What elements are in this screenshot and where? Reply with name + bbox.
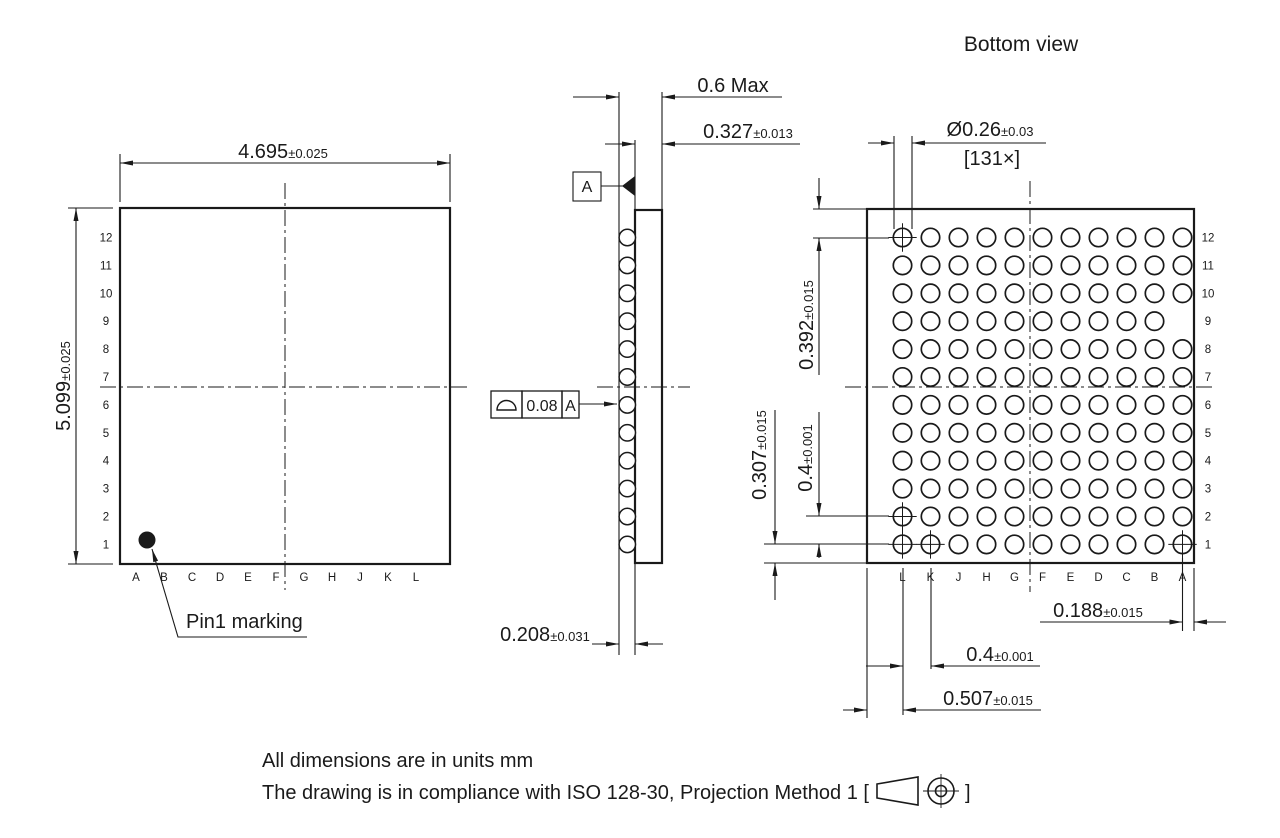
ball-J9 xyxy=(949,312,967,330)
dim-edge-right: 0.188±0.015 xyxy=(1053,600,1143,622)
ball-L3 xyxy=(893,479,911,497)
ball-B1 xyxy=(1145,535,1163,553)
ball-C12 xyxy=(1117,228,1135,246)
row-label: 11 xyxy=(1202,260,1214,272)
col-label: D xyxy=(216,572,224,584)
side-view-balls xyxy=(619,229,635,552)
ball-H11 xyxy=(977,256,995,274)
ball-E11 xyxy=(1061,256,1079,274)
ball-F12 xyxy=(1033,228,1051,246)
ball-C11 xyxy=(1117,256,1135,274)
col-label: H xyxy=(328,572,336,584)
ball-B12 xyxy=(1145,228,1163,246)
ball-H9 xyxy=(977,312,995,330)
side-ball-12 xyxy=(619,229,635,245)
ball-D3 xyxy=(1089,479,1107,497)
row-label: 7 xyxy=(1205,372,1211,384)
ball-L7 xyxy=(893,368,911,386)
ball-A4 xyxy=(1173,452,1191,470)
ball-D9 xyxy=(1089,312,1107,330)
ball-C9 xyxy=(1117,312,1135,330)
bottom-view-row-labels: 121110987654321 xyxy=(1202,233,1215,552)
ball-D10 xyxy=(1089,284,1107,302)
row-label: 7 xyxy=(103,372,109,384)
ball-A7 xyxy=(1173,368,1191,386)
ball-C2 xyxy=(1117,507,1135,525)
col-label: H xyxy=(982,572,990,584)
side-ball-1 xyxy=(619,536,635,552)
bottom-view: Ø0.26±0.03 [131×] 0.392±0.015 0.4±0.001 … xyxy=(749,119,1226,718)
ball-B5 xyxy=(1145,424,1163,442)
ball-J5 xyxy=(949,424,967,442)
ball-D6 xyxy=(1089,396,1107,414)
row-label: 6 xyxy=(1205,400,1211,412)
row-label: 9 xyxy=(103,316,109,328)
drawing-notes: All dimensions are in units mm The drawi… xyxy=(262,748,971,808)
col-label: F xyxy=(272,572,279,584)
ball-C7 xyxy=(1117,368,1135,386)
ball-count-label: [131×] xyxy=(964,148,1020,170)
ball-E6 xyxy=(1061,396,1079,414)
ball-K3 xyxy=(921,479,939,497)
row-label: 11 xyxy=(100,260,112,272)
col-label: A xyxy=(132,572,140,584)
ball-K11 xyxy=(921,256,939,274)
col-label: K xyxy=(384,572,392,584)
dim-edge-top: 0.392±0.015 xyxy=(796,280,818,370)
ball-E12 xyxy=(1061,228,1079,246)
row-label: 10 xyxy=(1202,288,1215,300)
col-label: E xyxy=(1067,572,1075,584)
ball-L10 xyxy=(893,284,911,302)
col-label: B xyxy=(160,572,168,584)
dim-ball-height: 0.208±0.031 xyxy=(500,624,590,646)
row-label: 10 xyxy=(100,288,113,300)
ball-B3 xyxy=(1145,479,1163,497)
pin1-label: Pin1 marking xyxy=(186,611,303,633)
ball-B8 xyxy=(1145,340,1163,358)
row-label: 5 xyxy=(1205,428,1211,440)
ball-F2 xyxy=(1033,507,1051,525)
ball-E1 xyxy=(1061,535,1079,553)
ball-D8 xyxy=(1089,340,1107,358)
ball-C5 xyxy=(1117,424,1135,442)
ball-B6 xyxy=(1145,396,1163,414)
ball-G3 xyxy=(1005,479,1023,497)
col-label: G xyxy=(300,572,309,584)
ball-H6 xyxy=(977,396,995,414)
side-ball-3 xyxy=(619,480,635,496)
ball-H12 xyxy=(977,228,995,246)
col-label: G xyxy=(1010,572,1019,584)
row-label: 1 xyxy=(1205,539,1211,551)
fcf-symbol-cell xyxy=(491,391,522,418)
row-label: 2 xyxy=(1205,512,1211,524)
ball-D2 xyxy=(1089,507,1107,525)
ball-G8 xyxy=(1005,340,1023,358)
ball-F6 xyxy=(1033,396,1051,414)
ball-C1 xyxy=(1117,535,1135,553)
ball-D7 xyxy=(1089,368,1107,386)
dim-edge-left: 0.507±0.015 xyxy=(943,688,1033,710)
ball-E7 xyxy=(1061,368,1079,386)
side-ball-9 xyxy=(619,313,635,329)
ball-K4 xyxy=(921,452,939,470)
ball-H7 xyxy=(977,368,995,386)
ball-D4 xyxy=(1089,452,1107,470)
profile-of-surface-icon xyxy=(497,401,516,411)
side-ball-6 xyxy=(619,397,635,413)
ball-B11 xyxy=(1145,256,1163,274)
fcf-datum-ref: A xyxy=(565,398,576,415)
ball-K12 xyxy=(921,228,939,246)
fcf-tolerance-value: 0.08 xyxy=(526,398,557,415)
dim-ball-diameter: Ø0.26±0.03 xyxy=(947,119,1034,141)
ball-L9 xyxy=(893,312,911,330)
ball-F9 xyxy=(1033,312,1051,330)
ball-J11 xyxy=(949,256,967,274)
ball-B4 xyxy=(1145,452,1163,470)
pin1-marking-dot xyxy=(139,532,156,549)
ball-K2 xyxy=(921,507,939,525)
engineering-drawing: 4.695±0.025 5.099±0.025 Pin1 marking 121… xyxy=(0,0,1280,838)
ball-K9 xyxy=(921,312,939,330)
ball-B9 xyxy=(1145,312,1163,330)
ball-C3 xyxy=(1117,479,1135,497)
side-ball-11 xyxy=(619,257,635,273)
side-ball-7 xyxy=(619,369,635,385)
ball-G10 xyxy=(1005,284,1023,302)
ball-G11 xyxy=(1005,256,1023,274)
ball-B10 xyxy=(1145,284,1163,302)
ball-A5 xyxy=(1173,424,1191,442)
dim-body-thickness: 0.327±0.013 xyxy=(703,121,793,143)
col-label: L xyxy=(899,572,906,584)
ball-A3 xyxy=(1173,479,1191,497)
ball-E4 xyxy=(1061,452,1079,470)
ball-J8 xyxy=(949,340,967,358)
col-label: D xyxy=(1094,572,1102,584)
row-label: 5 xyxy=(103,428,109,440)
top-view: 4.695±0.025 5.099±0.025 Pin1 marking 121… xyxy=(53,141,468,637)
ball-B7 xyxy=(1145,368,1163,386)
ball-J7 xyxy=(949,368,967,386)
dim-edge-bottom: 0.307±0.015 xyxy=(749,410,771,500)
row-label: 12 xyxy=(100,233,113,245)
ball-F4 xyxy=(1033,452,1051,470)
ball-F11 xyxy=(1033,256,1051,274)
note-units: All dimensions are in units mm xyxy=(262,748,971,774)
row-label: 3 xyxy=(1205,484,1211,496)
ball-K5 xyxy=(921,424,939,442)
ball-H1 xyxy=(977,535,995,553)
ball-C6 xyxy=(1117,396,1135,414)
col-label: J xyxy=(357,572,363,584)
ball-L8 xyxy=(893,340,911,358)
ball-H2 xyxy=(977,507,995,525)
ball-L6 xyxy=(893,396,911,414)
top-view-col-labels: ABCDEFGHJKL xyxy=(132,572,420,584)
ball-F8 xyxy=(1033,340,1051,358)
dim-overall-height: 0.6 Max xyxy=(697,75,768,97)
row-label: 3 xyxy=(103,484,109,496)
side-ball-8 xyxy=(619,341,635,357)
ball-F5 xyxy=(1033,424,1051,442)
dim-top-height: 5.099±0.025 xyxy=(53,341,75,431)
row-label: 9 xyxy=(1205,316,1211,328)
ball-G9 xyxy=(1005,312,1023,330)
side-ball-2 xyxy=(619,508,635,524)
ball-J2 xyxy=(949,507,967,525)
col-label: F xyxy=(1039,572,1046,584)
row-label: 8 xyxy=(103,344,109,356)
bottom-view-title: Bottom view xyxy=(964,33,1079,56)
row-label: 6 xyxy=(103,400,109,412)
ball-L5 xyxy=(893,424,911,442)
ball-G6 xyxy=(1005,396,1023,414)
top-view-row-labels: 121110987654321 xyxy=(100,233,113,552)
ball-E10 xyxy=(1061,284,1079,302)
side-view: 0.6 Max 0.327±0.013 0.208±0.031 A 0.08 A xyxy=(491,75,800,655)
col-label: B xyxy=(1151,572,1159,584)
col-label: C xyxy=(188,572,196,584)
ball-L11 xyxy=(893,256,911,274)
ball-F1 xyxy=(1033,535,1051,553)
ball-H8 xyxy=(977,340,995,358)
ball-L4 xyxy=(893,452,911,470)
datum-triangle-icon xyxy=(622,176,635,196)
ball-G5 xyxy=(1005,424,1023,442)
ball-D12 xyxy=(1089,228,1107,246)
ball-J1 xyxy=(949,535,967,553)
ball-K7 xyxy=(921,368,939,386)
ball-A12 xyxy=(1173,228,1191,246)
ball-H10 xyxy=(977,284,995,302)
ball-G1 xyxy=(1005,535,1023,553)
ball-D11 xyxy=(1089,256,1107,274)
ball-J4 xyxy=(949,452,967,470)
col-label: C xyxy=(1122,572,1130,584)
ball-F3 xyxy=(1033,479,1051,497)
ball-G4 xyxy=(1005,452,1023,470)
ball-H5 xyxy=(977,424,995,442)
ball-J3 xyxy=(949,479,967,497)
ball-C8 xyxy=(1117,340,1135,358)
row-label: 8 xyxy=(1205,344,1211,356)
ball-D5 xyxy=(1089,424,1107,442)
ball-C10 xyxy=(1117,284,1135,302)
row-label: 4 xyxy=(103,456,110,468)
ball-G2 xyxy=(1005,507,1023,525)
note-projection: The drawing is in compliance with ISO 12… xyxy=(262,774,971,808)
ball-K8 xyxy=(921,340,939,358)
ball-A6 xyxy=(1173,396,1191,414)
ball-C4 xyxy=(1117,452,1135,470)
ball-E8 xyxy=(1061,340,1079,358)
bottom-view-ball-grid xyxy=(888,223,1196,558)
col-label: J xyxy=(956,572,962,584)
ball-A11 xyxy=(1173,256,1191,274)
ball-E2 xyxy=(1061,507,1079,525)
side-ball-10 xyxy=(619,285,635,301)
ball-K6 xyxy=(921,396,939,414)
ball-J6 xyxy=(949,396,967,414)
dim-pitch-vertical: 0.4±0.001 xyxy=(795,424,817,491)
ball-D1 xyxy=(1089,535,1107,553)
drawing-canvas: 4.695±0.025 5.099±0.025 Pin1 marking 121… xyxy=(0,0,1280,838)
ball-B2 xyxy=(1145,507,1163,525)
ball-A2 xyxy=(1173,507,1191,525)
ball-G12 xyxy=(1005,228,1023,246)
bottom-view-col-labels: LKJHGFEDCBA xyxy=(899,572,1186,584)
ball-K10 xyxy=(921,284,939,302)
side-ball-5 xyxy=(619,425,635,441)
ball-F10 xyxy=(1033,284,1051,302)
ball-E3 xyxy=(1061,479,1079,497)
ball-A10 xyxy=(1173,284,1191,302)
ball-E5 xyxy=(1061,424,1079,442)
col-label: L xyxy=(413,572,420,584)
col-label: K xyxy=(927,572,935,584)
datum-a-label: A xyxy=(582,179,593,196)
row-label: 2 xyxy=(103,512,109,524)
ball-F7 xyxy=(1033,368,1051,386)
feature-control-frame: 0.08 A xyxy=(491,391,617,418)
ball-J10 xyxy=(949,284,967,302)
dim-pitch-horizontal: 0.4±0.001 xyxy=(966,644,1033,666)
row-label: 12 xyxy=(1202,233,1215,245)
col-label: A xyxy=(1179,572,1187,584)
ball-A8 xyxy=(1173,340,1191,358)
row-label: 1 xyxy=(103,539,109,551)
ball-J12 xyxy=(949,228,967,246)
side-ball-4 xyxy=(619,453,635,469)
col-label: E xyxy=(244,572,252,584)
ball-H3 xyxy=(977,479,995,497)
dim-top-width: 4.695±0.025 xyxy=(238,141,328,163)
first-angle-projection-icon xyxy=(871,774,963,808)
ball-E9 xyxy=(1061,312,1079,330)
ball-G7 xyxy=(1005,368,1023,386)
row-label: 4 xyxy=(1205,456,1212,468)
ball-H4 xyxy=(977,452,995,470)
